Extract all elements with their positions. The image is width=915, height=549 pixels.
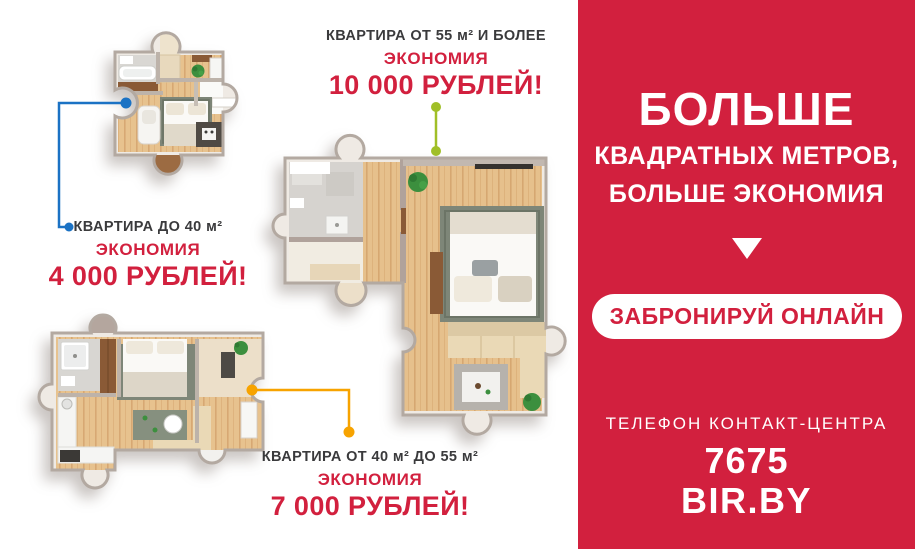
floorplan-small-apartment-illustration <box>100 14 255 182</box>
plan-size-label: КВАРТИРА ДО 40 м² <box>38 218 258 237</box>
floorplan-large-apartment-illustration <box>270 112 580 457</box>
phone-number: 7675 <box>578 440 915 482</box>
phone-label: ТЕЛЕФОН КОНТАКТ-ЦЕНТРА <box>578 414 915 434</box>
website-link[interactable]: BIR.BY <box>578 480 915 522</box>
floorplan-medium-apartment-illustration <box>35 300 280 505</box>
plan-note-medium: КВАРТИРА ОТ 40 м² ДО 55 м² ЭКОНОМИЯ 7 00… <box>245 448 495 522</box>
down-arrow-icon <box>732 238 762 259</box>
savings-amount: 10 000 РУБЛЕЙ! <box>296 70 576 101</box>
headline-line-2: КВАДРАТНЫХ МЕТРОВ, <box>578 144 915 169</box>
headline-line-3: БОЛЬШЕ ЭКОНОМИЯ <box>578 182 915 207</box>
savings-label: ЭКОНОМИЯ <box>296 48 576 69</box>
savings-label: ЭКОНОМИЯ <box>245 469 495 490</box>
plan-size-label: КВАРТИРА ОТ 55 м² И БОЛЕЕ <box>296 27 576 46</box>
book-online-button[interactable]: ЗАБРОНИРУЙ ОНЛАЙН <box>592 294 902 339</box>
sidebar-panel: БОЛЬШЕ КВАДРАТНЫХ МЕТРОВ, БОЛЬШЕ ЭКОНОМИ… <box>578 0 915 549</box>
savings-label: ЭКОНОМИЯ <box>38 239 258 260</box>
savings-amount: 4 000 РУБЛЕЙ! <box>38 261 258 292</box>
savings-amount: 7 000 РУБЛЕЙ! <box>245 491 495 522</box>
headline-line-1: БОЛЬШЕ <box>578 86 915 132</box>
plan-note-small: КВАРТИРА ДО 40 м² ЭКОНОМИЯ 4 000 РУБЛЕЙ! <box>38 218 258 292</box>
plan-note-large: КВАРТИРА ОТ 55 м² И БОЛЕЕ ЭКОНОМИЯ 10 00… <box>296 27 576 101</box>
connector-dot-green-label <box>431 102 441 112</box>
promo-banner: КВАРТИРА ОТ 55 м² И БОЛЕЕ ЭКОНОМИЯ 10 00… <box>0 0 915 549</box>
plan-size-label: КВАРТИРА ОТ 40 м² ДО 55 м² <box>245 448 495 467</box>
